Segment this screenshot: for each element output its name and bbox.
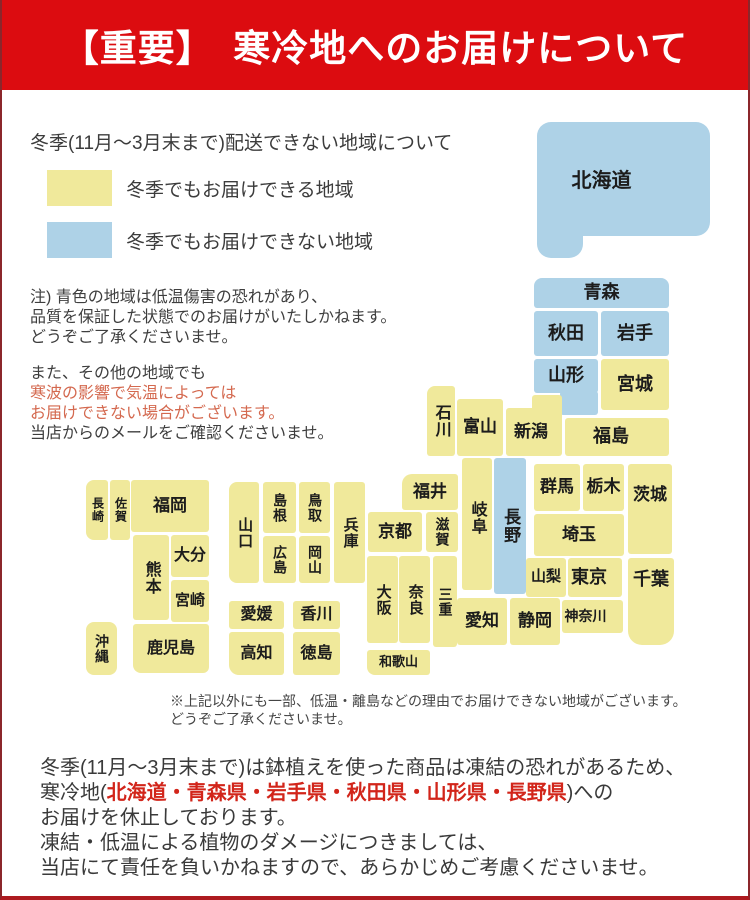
pref-label: 長野	[501, 508, 519, 544]
pref-label: 千葉	[633, 570, 669, 589]
pref-saga: 佐賀	[110, 480, 130, 540]
legend-label: 冬季でもお届けできない地域	[126, 227, 373, 254]
pref-saitama: 埼玉	[534, 514, 624, 556]
pref-shiga: 滋賀	[426, 512, 458, 552]
text-line: 注) 青色の地域は低温傷害の恐れがあり、	[30, 288, 396, 308]
pref-label: 和歌山	[379, 655, 418, 669]
pref-label: 山口	[236, 517, 252, 549]
footer-notice: 冬季(11月〜3月末まで)は鉢植えを使った商品は凍結の恐れがあるため、 寒冷地(…	[40, 756, 685, 881]
pref-label: 佐賀	[114, 497, 127, 523]
pref-kumamoto: 熊本	[133, 535, 169, 620]
pref-oita: 大分	[171, 535, 209, 577]
pref-okayama: 岡山	[299, 536, 330, 583]
text-line: 当店からのメールをご確認くださいませ。	[30, 424, 334, 444]
pref-niigata-ext	[532, 395, 562, 415]
pref-label: 三重	[437, 587, 452, 617]
pref-label: 岡山	[307, 545, 322, 575]
pref-label: 高知	[240, 645, 272, 662]
note-cold-wave: また、その他の地域でも寒波の影響で気温によってはお届けできない場合がございます。…	[30, 364, 334, 444]
pref-nagano: 長野	[494, 458, 526, 594]
pref-label: 島根	[272, 493, 287, 523]
pref-label: 兵庫	[341, 517, 357, 549]
pref-fukushima: 福島	[565, 418, 669, 456]
pref-label: 石川	[432, 404, 449, 438]
pref-label: 静岡	[518, 612, 552, 630]
pref-label: 大分	[174, 547, 206, 564]
pref-label: 山形	[548, 366, 584, 385]
pref-label: 宮城	[617, 375, 653, 394]
pref-wakayama: 和歌山	[367, 650, 430, 675]
pref-fukui: 福井	[402, 474, 458, 510]
pref-label: 広島	[272, 545, 287, 575]
pref-ishikawa: 石川	[427, 386, 455, 456]
pref-iwate: 岩手	[601, 311, 669, 356]
pref-hokkaido: 北海道	[537, 122, 710, 236]
legend: 冬季でもお届けできる地域冬季でもお届けできない地域	[47, 170, 373, 274]
text-line: また、その他の地域でも	[30, 364, 334, 384]
footer-line-2: 寒冷地(北海道・青森県・岩手県・秋田県・山形県・長野県)への	[40, 781, 685, 806]
pref-label: 長崎	[91, 497, 104, 523]
pref-aomori: 青森	[534, 278, 669, 308]
pref-nagasaki: 長崎	[86, 480, 108, 540]
pref-label: 秋田	[548, 324, 584, 343]
pref-label: 愛媛	[240, 606, 272, 623]
page-title: 【重要】 寒冷地へのお届けについて	[62, 18, 688, 72]
text-line: お届けできない場合がございます。	[30, 404, 334, 424]
pref-tokushima: 徳島	[293, 632, 340, 675]
pref-label: 熊本	[142, 561, 159, 595]
pref-label: 北海道	[572, 171, 632, 193]
pref-label: 福岡	[153, 497, 187, 515]
pref-gunma: 群馬	[534, 464, 580, 511]
pref-yamanashi: 山梨	[526, 558, 566, 597]
pref-label: 青森	[584, 283, 620, 302]
pref-nara: 奈良	[399, 556, 430, 643]
pref-label: 鳥取	[307, 493, 322, 523]
pref-mie: 三重	[433, 556, 457, 647]
pref-label: 沖縄	[94, 634, 109, 664]
pref-gifu: 岐阜	[462, 458, 492, 590]
footer-line-3: お届けを休止しております。	[40, 806, 685, 831]
pref-kagoshima: 鹿児島	[133, 624, 209, 673]
pref-fukuoka: 福岡	[131, 480, 209, 532]
pref-toyama: 富山	[457, 399, 503, 456]
pref-hokkaido-tab	[537, 200, 583, 258]
pref-okinawa: 沖縄	[86, 622, 117, 675]
pref-label: 愛知	[465, 612, 499, 630]
legend-item-not_deliverable: 冬季でもお届けできない地域	[47, 222, 373, 258]
pref-shizuoka: 静岡	[510, 598, 560, 645]
pref-label: 徳島	[300, 645, 332, 662]
pref-miyazaki: 宮崎	[171, 580, 209, 622]
pref-label: 東京	[571, 568, 607, 587]
legend-swatch-deliverable	[47, 170, 112, 206]
pref-label: 岐阜	[468, 501, 485, 535]
pref-label: 山梨	[531, 569, 561, 585]
pref-label: 福井	[413, 483, 447, 501]
pref-label: 京都	[378, 523, 412, 541]
pref-hiroshima: 広島	[263, 536, 296, 583]
pref-label: 香川	[300, 606, 332, 623]
pref-yamaguchi: 山口	[229, 482, 259, 583]
pref-miyagi: 宮城	[601, 359, 669, 410]
pref-label: 宮崎	[175, 593, 205, 609]
footer-line2-suffix: )への	[567, 782, 614, 804]
legend-item-deliverable: 冬季でもお届けできる地域	[47, 170, 373, 206]
legend-swatch-not_deliverable	[47, 222, 112, 258]
legend-label: 冬季でもお届けできる地域	[126, 175, 354, 202]
pref-tokyo: 東京	[568, 558, 622, 597]
pref-label: 大阪	[374, 584, 390, 616]
pref-ehime: 愛媛	[229, 601, 284, 629]
text-line: 寒波の影響で気温によっては	[30, 384, 334, 404]
pref-hyogo: 兵庫	[334, 482, 365, 583]
pref-akita: 秋田	[534, 311, 598, 356]
cold-region-prefecture-list: 北海道・青森県・岩手県・秋田県・山形県・長野県	[107, 782, 567, 804]
pref-label: 奈良	[406, 584, 422, 616]
pref-kochi: 高知	[229, 632, 284, 675]
intro-heading: 冬季(11月〜3月末まで)配送できない地域について	[30, 128, 452, 155]
text-line: どうぞご了承くださいませ。	[170, 710, 687, 728]
pref-ibaraki: 茨城	[628, 464, 672, 554]
pref-label: 福島	[593, 427, 629, 446]
pref-kyoto: 京都	[368, 512, 422, 552]
pref-label: 埼玉	[562, 526, 596, 544]
text-line: どうぞご了承くださいませ。	[30, 328, 396, 348]
text-line: 品質を保証した状態でのお届けがいたしかねます。	[30, 308, 396, 328]
pref-label: 新潟	[514, 423, 548, 441]
note-blue-region: 注) 青色の地域は低温傷害の恐れがあり、品質を保証した状態でのお届けがいたしかね…	[30, 288, 396, 348]
pref-chiba: 千葉	[628, 558, 674, 645]
pref-osaka: 大阪	[367, 556, 398, 643]
pref-label: 群馬	[540, 478, 574, 496]
pref-kanagawa: 神奈川	[562, 600, 623, 633]
cold-region-delivery-notice: 【重要】 寒冷地へのお届けについて 冬季(11月〜3月末まで)配送できない地域に…	[0, 0, 750, 900]
text-line: ※上記以外にも一部、低温・離島などの理由でお届けできない地域がございます。	[170, 692, 687, 710]
pref-niigata: 新潟	[506, 408, 562, 456]
pref-label: 神奈川	[565, 609, 607, 624]
pref-label: 鹿児島	[147, 640, 195, 657]
pref-yamagata: 山形	[534, 359, 598, 393]
footnote: ※上記以外にも一部、低温・離島などの理由でお届けできない地域がございます。どうぞ…	[170, 692, 687, 728]
pref-label: 岩手	[617, 324, 653, 343]
pref-label: 茨城	[633, 486, 667, 504]
pref-yamagata-ext	[560, 391, 598, 415]
footer-line-5: 当店にて責任を負いかねますので、あらかじめご考慮くださいませ。	[40, 856, 685, 881]
pref-shimane: 島根	[263, 482, 296, 533]
pref-aichi: 愛知	[457, 598, 507, 645]
pref-label: 栃木	[587, 478, 621, 496]
pref-tochigi: 栃木	[583, 464, 624, 511]
header-banner: 【重要】 寒冷地へのお届けについて	[2, 0, 748, 90]
footer-line-1: 冬季(11月〜3月末まで)は鉢植えを使った商品は凍結の恐れがあるため、	[40, 756, 685, 781]
pref-tottori: 鳥取	[299, 482, 330, 533]
footer-line2-prefix: 寒冷地(	[40, 782, 107, 804]
pref-label: 富山	[463, 418, 497, 436]
footer-line-4: 凍結・低温による植物のダメージにつきましては、	[40, 831, 685, 856]
pref-kagawa: 香川	[293, 601, 340, 629]
pref-label: 滋賀	[434, 517, 449, 547]
